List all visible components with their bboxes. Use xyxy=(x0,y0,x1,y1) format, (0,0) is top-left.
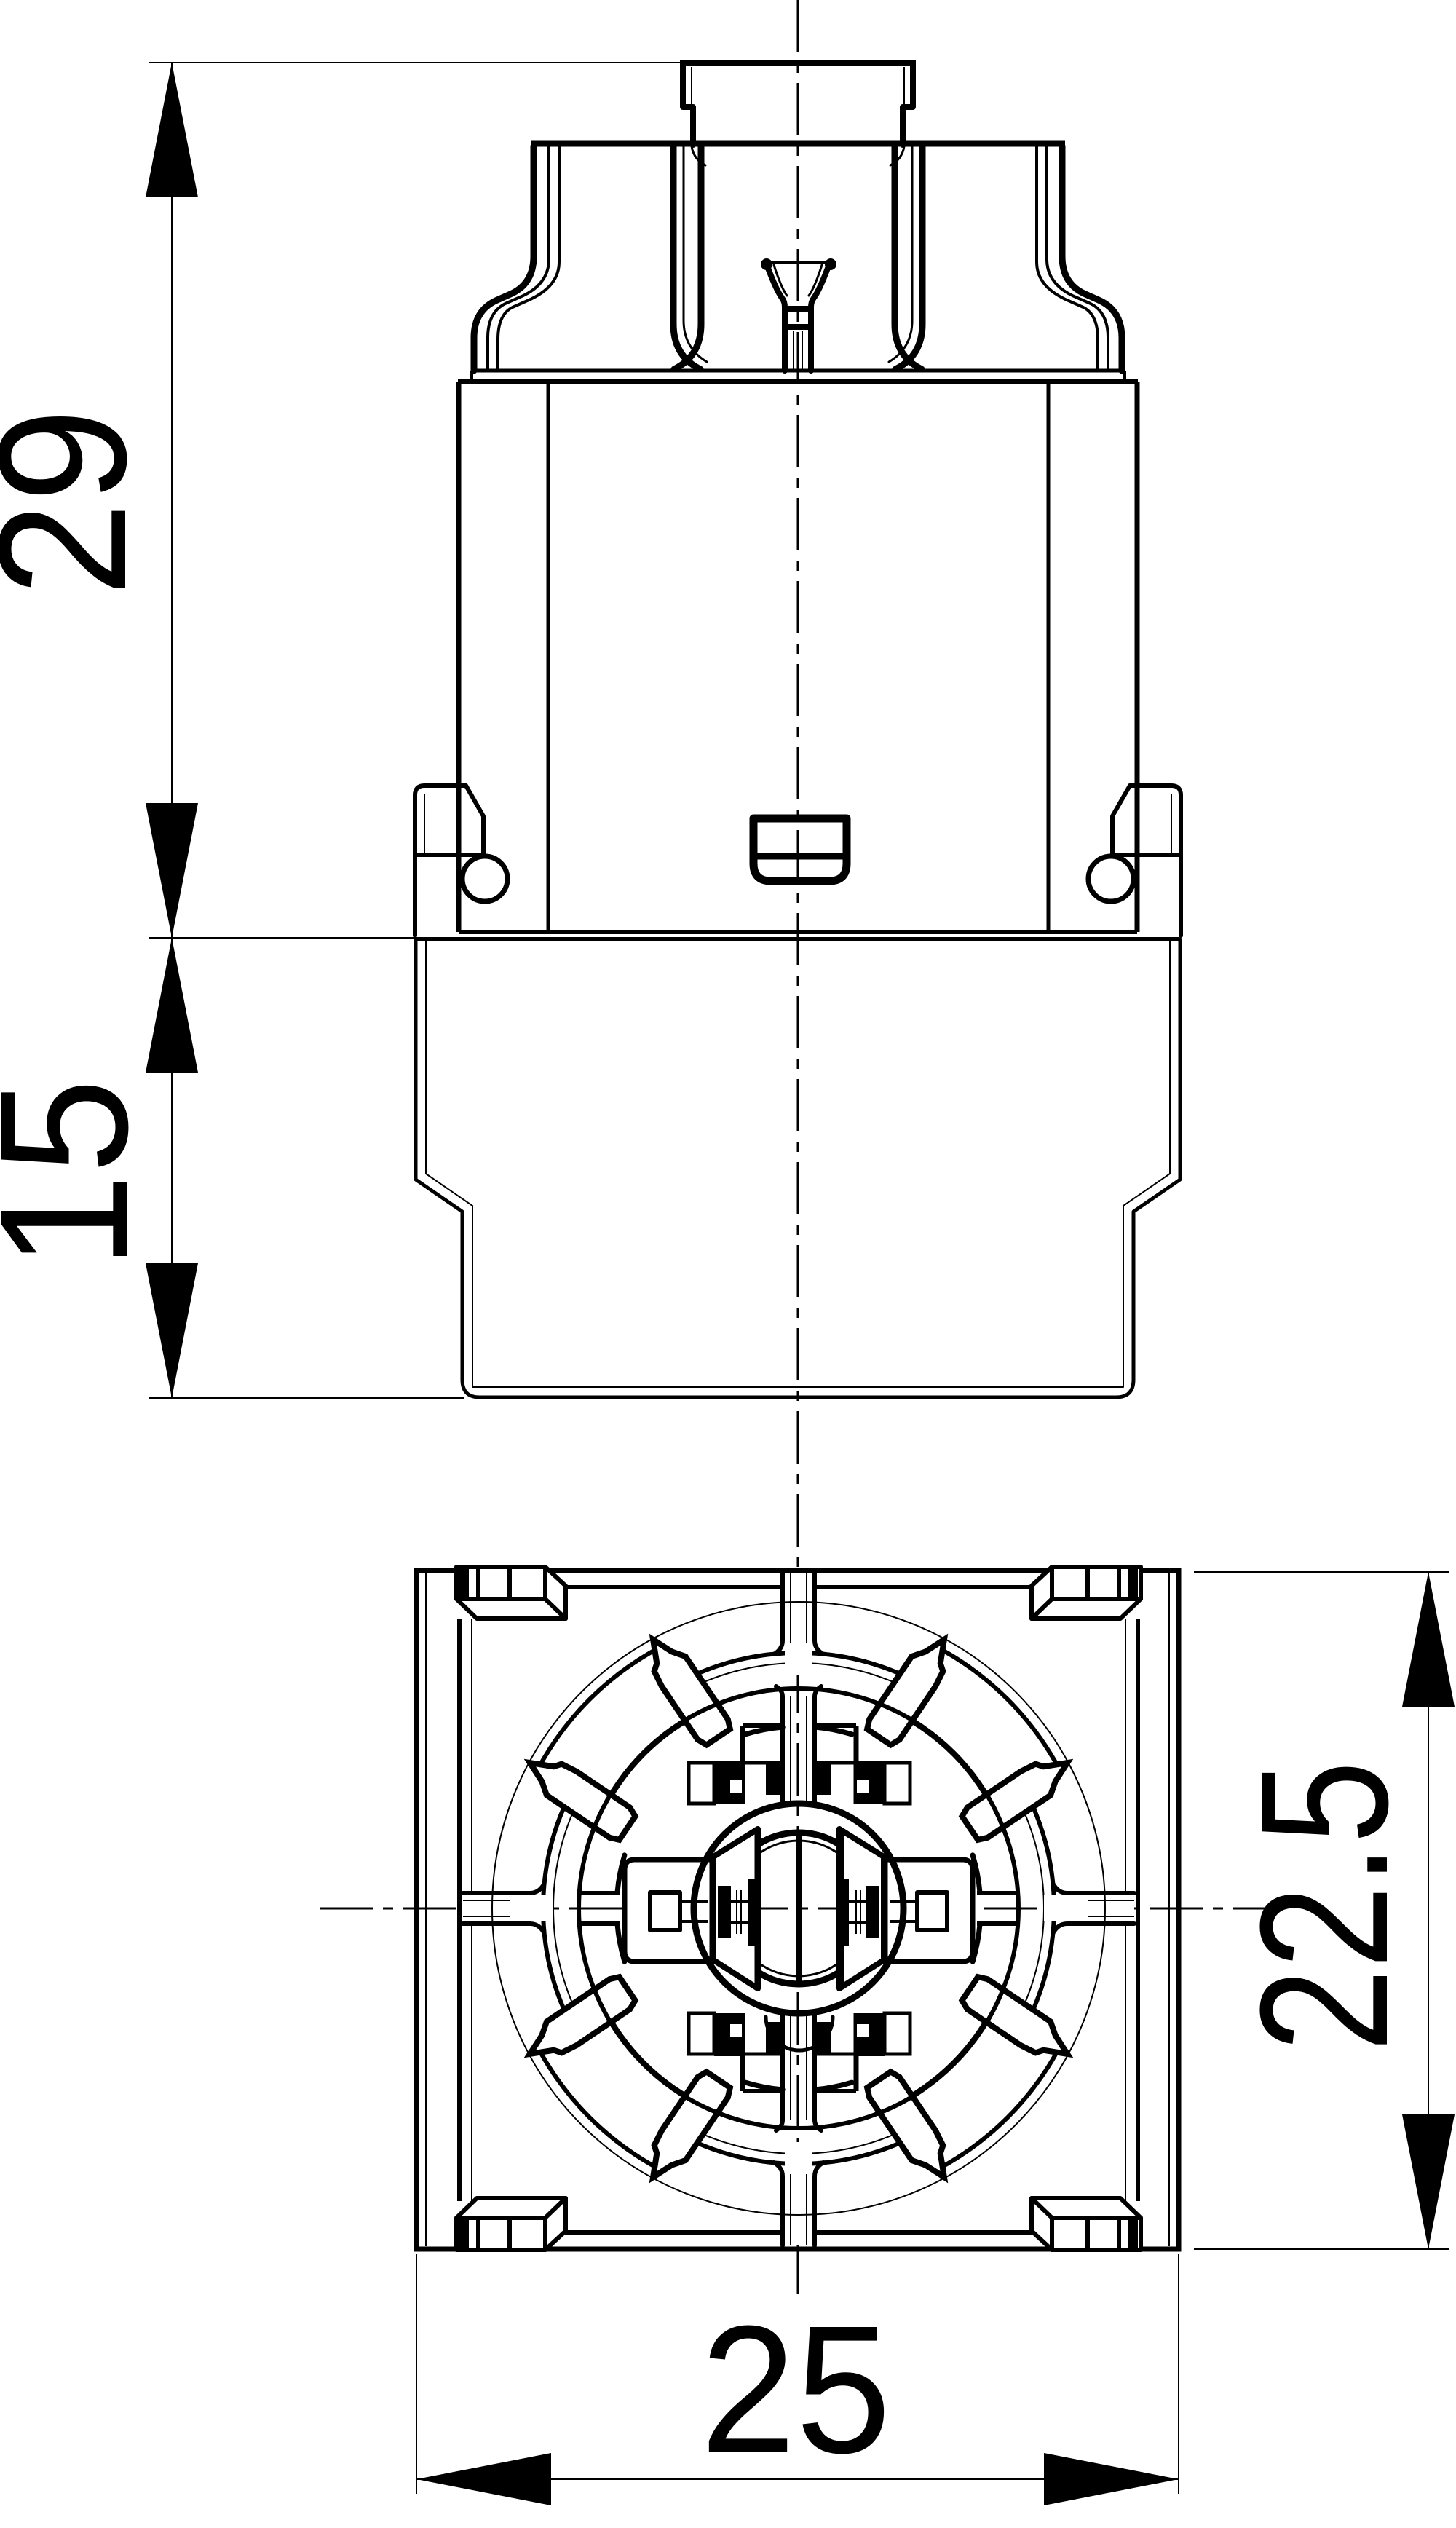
svg-text:15: 15 xyxy=(0,1078,165,1269)
svg-text:25: 25 xyxy=(700,2288,891,2491)
svg-text:29: 29 xyxy=(0,408,164,596)
svg-text:22.5: 22.5 xyxy=(1222,1761,1425,2052)
